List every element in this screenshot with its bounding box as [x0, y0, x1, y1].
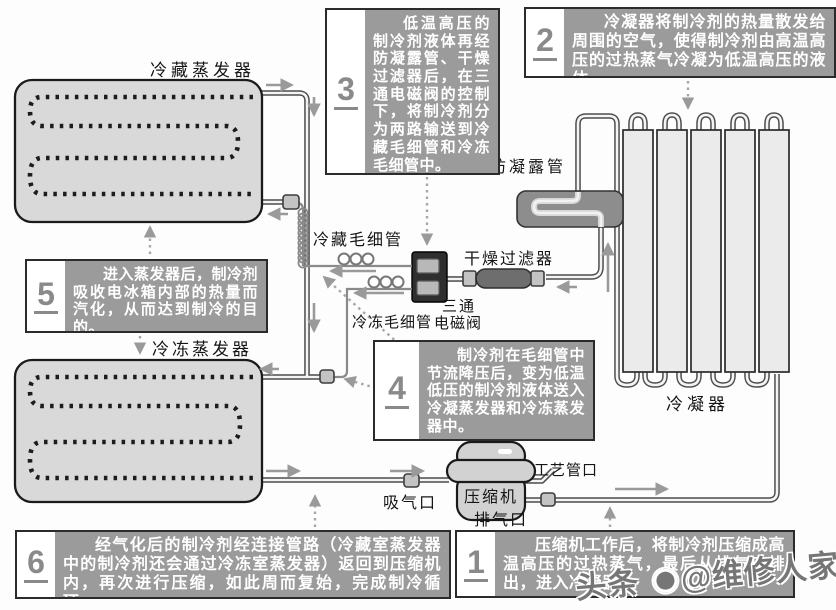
- fridge-evap-inlet-fitting: [283, 195, 299, 209]
- toutiao-logo-icon: [652, 568, 678, 594]
- note-box-2: 2 冷凝器将制冷剂的热量散发给周围的空气，使得制冷剂由高温高压的过热蒸气冷凝为低…: [524, 7, 836, 78]
- condenser: [623, 130, 789, 372]
- freezer-evaporator: [15, 360, 262, 502]
- note-box-5: 5 进入蒸发器后，制冷剂吸收电冰箱内部的热量而汽化，从而达到制冷的目的。: [25, 259, 268, 333]
- label-anti-condensation-tube: 防凝露管: [490, 153, 566, 177]
- label-freezer-capillary: 冷冻毛细管: [352, 311, 432, 332]
- note-number: 4: [375, 342, 419, 439]
- note-number: 6: [17, 532, 55, 597]
- label-fridge-evaporator: 冷藏蒸发器: [150, 56, 255, 81]
- suction-fitting: [404, 474, 419, 487]
- discharge-fitting: [541, 493, 555, 506]
- label-fridge-capillary: 冷藏毛细管: [313, 226, 403, 250]
- note-box-4: 4 制冷剂在毛细管中节流降压后，变为低温低压的制冷剂液体送入冷凝蒸发器和冷冻蒸发…: [373, 340, 595, 441]
- label-condenser: 冷凝器: [666, 390, 729, 415]
- note-box-3: 3 低温高压的制冷剂液体再经防凝露管、干燥过滤器后，在三通电磁阀的控制下，将制冷…: [325, 8, 500, 175]
- compressor-highlight: [498, 449, 512, 454]
- label-freezer-evaporator: 冷冻蒸发器: [152, 335, 252, 360]
- anti-condensation-tube: [517, 191, 623, 227]
- label-drying-filter: 干燥过滤器: [464, 245, 554, 269]
- note-number: 2: [526, 9, 564, 76]
- fridge-evaporator: [15, 80, 262, 222]
- label-suction-port: 吸气口: [383, 489, 437, 513]
- note-number: 5: [27, 261, 65, 331]
- drying-filter: [463, 269, 544, 288]
- note-text: 经气化后的制冷剂经连接管路（冷藏室蒸发器中的制冷剂还会通过冷冻室蒸发器）返回到压…: [55, 532, 449, 597]
- note-number: 1: [457, 532, 495, 596]
- note-text: 低温高压的制冷剂液体再经防凝露管、干燥过滤器后，在三通电磁阀的控制下，将制冷剂分…: [365, 10, 498, 173]
- note-box-6: 6 经气化后的制冷剂经连接管路（冷藏室蒸发器中的制冷剂还会通过冷冻室蒸发器）返回…: [15, 530, 451, 599]
- label-discharge-port: 排气口: [474, 506, 528, 530]
- label-compressor: 压缩机: [464, 483, 518, 507]
- watermark-prefix: 头条: [574, 564, 650, 605]
- note-number: 3: [327, 10, 365, 173]
- label-process-port: 工艺管口: [534, 459, 598, 480]
- note-text: 冷凝器将制冷剂的热量散发给周围的空气，使得制冷剂由高温高压的过热蒸气冷凝为低温高…: [564, 9, 834, 76]
- refrigeration-cycle-diagram: 冷藏蒸发器 冷冻蒸发器 冷凝器 防凝露管 干燥过滤器 冷藏毛细管 冷冻毛细管 三…: [0, 0, 836, 610]
- label-valve-line2: 电磁阀: [434, 312, 482, 333]
- note-text: 进入蒸发器后，制冷剂吸收电冰箱内部的热量而汽化，从而达到制冷的目的。: [65, 261, 266, 331]
- note-text: 制冷剂在毛细管中节流降压后，变为低温低压的制冷剂液体送入冷凝蒸发器和冷冻蒸发器中…: [419, 342, 593, 439]
- freezer-evap-inlet-fitting: [320, 370, 334, 383]
